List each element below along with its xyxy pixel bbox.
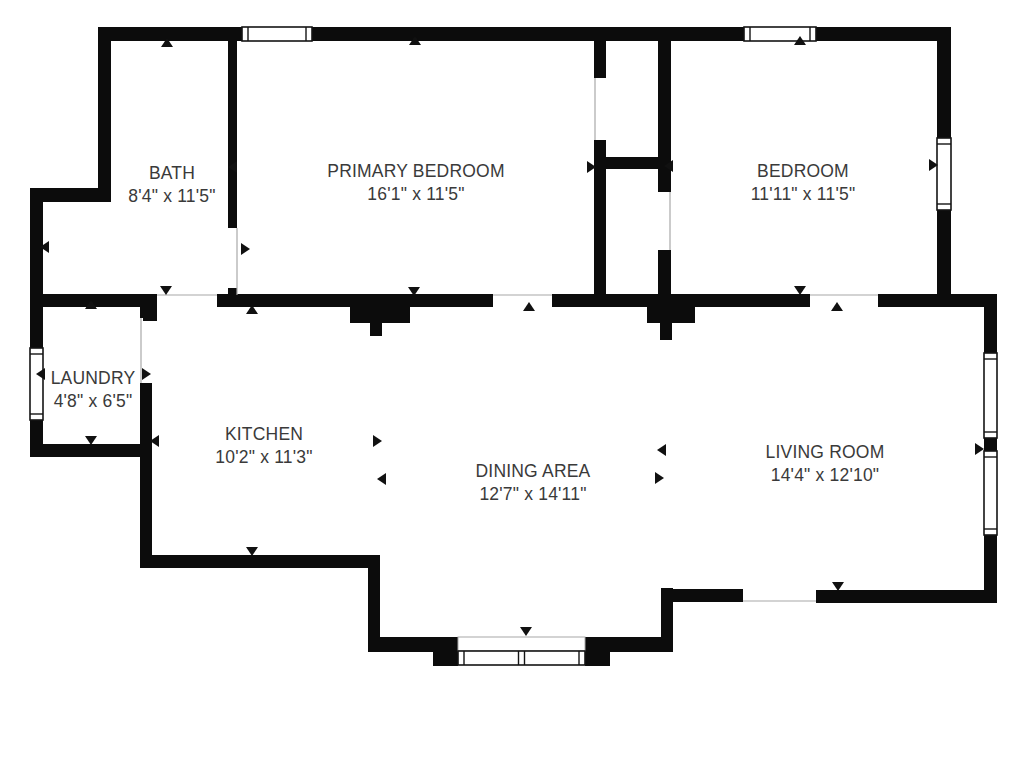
window-bath-top-window [242, 27, 312, 41]
wall-kitchen-bottom [140, 555, 380, 568]
wall-laundry-right-a [140, 294, 152, 318]
wall-junction-block [647, 305, 695, 323]
wall-left-upper [30, 188, 43, 348]
door-marker-icon [832, 582, 844, 591]
room-size: 4'8" x 6'5" [0, 390, 253, 413]
room-name: LAUNDRY [0, 367, 253, 390]
room-label-dining-area: DINING AREA 12'7" x 14'11" [373, 460, 693, 505]
wall-top-wall [98, 27, 951, 41]
wall-bay-block-left [433, 637, 458, 666]
wall-closet-left-a [594, 41, 606, 78]
wall-living-right-c [984, 535, 997, 603]
room-name: PRIMARY BEDROOM [256, 160, 576, 183]
door-marker-icon [85, 436, 97, 445]
wall-divider-b-block [350, 307, 410, 323]
wall-divider-b-stub [370, 323, 382, 336]
door-marker-icon [831, 302, 843, 311]
room-label-primary-bedroom: PRIMARY BEDROOM 16'1" x 11'5" [256, 160, 576, 205]
room-size: 16'1" x 11'5" [256, 183, 576, 206]
door-marker-icon [246, 547, 258, 556]
room-label-laundry: LAUNDRY 4'8" x 6'5" [0, 367, 253, 412]
door-marker-icon [794, 286, 806, 295]
window-bedroom-top-window [744, 27, 816, 41]
door-marker-icon [523, 302, 535, 311]
door-marker-icon [241, 243, 250, 255]
wall-closet-right-b [658, 250, 671, 294]
room-label-living-room: LIVING ROOM 14'4" x 12'10" [665, 441, 985, 486]
wall-bath-right-stub [228, 288, 237, 295]
wall-bedroom-right-b [937, 210, 951, 307]
wall-junction-stub [660, 323, 672, 340]
wall-living-bottom-right [816, 590, 997, 603]
wall-living-right-b [984, 438, 997, 451]
room-size: 12'7" x 14'11" [373, 483, 693, 506]
room-name: LIVING ROOM [665, 441, 985, 464]
wall-divider-d [878, 294, 997, 307]
door-marker-icon [520, 627, 532, 636]
wall-bedroom-right-a [937, 27, 951, 138]
window-living-window-2 [984, 451, 997, 535]
wall-living-bottom-left [661, 589, 743, 602]
room-name: KITCHEN [104, 423, 424, 446]
room-size: 11'11" x 11'5" [643, 183, 963, 206]
window-bay-window [458, 651, 585, 665]
wall-living-right-a [984, 300, 997, 353]
room-name: BEDROOM [643, 160, 963, 183]
room-label-bedroom: BEDROOM 11'11" x 11'5" [643, 160, 963, 205]
room-size: 14'4" x 12'10" [665, 464, 985, 487]
window-living-window-1 [984, 353, 997, 438]
door-marker-icon [160, 286, 172, 295]
wall-dining-bottom-right [585, 637, 662, 652]
floor-plan: BATH 8'4" x 11'5" PRIMARY BEDROOM 16'1" … [0, 0, 1024, 768]
room-name: DINING AREA [373, 460, 693, 483]
bay-opening [458, 637, 585, 651]
wall-divider-b [217, 294, 493, 307]
